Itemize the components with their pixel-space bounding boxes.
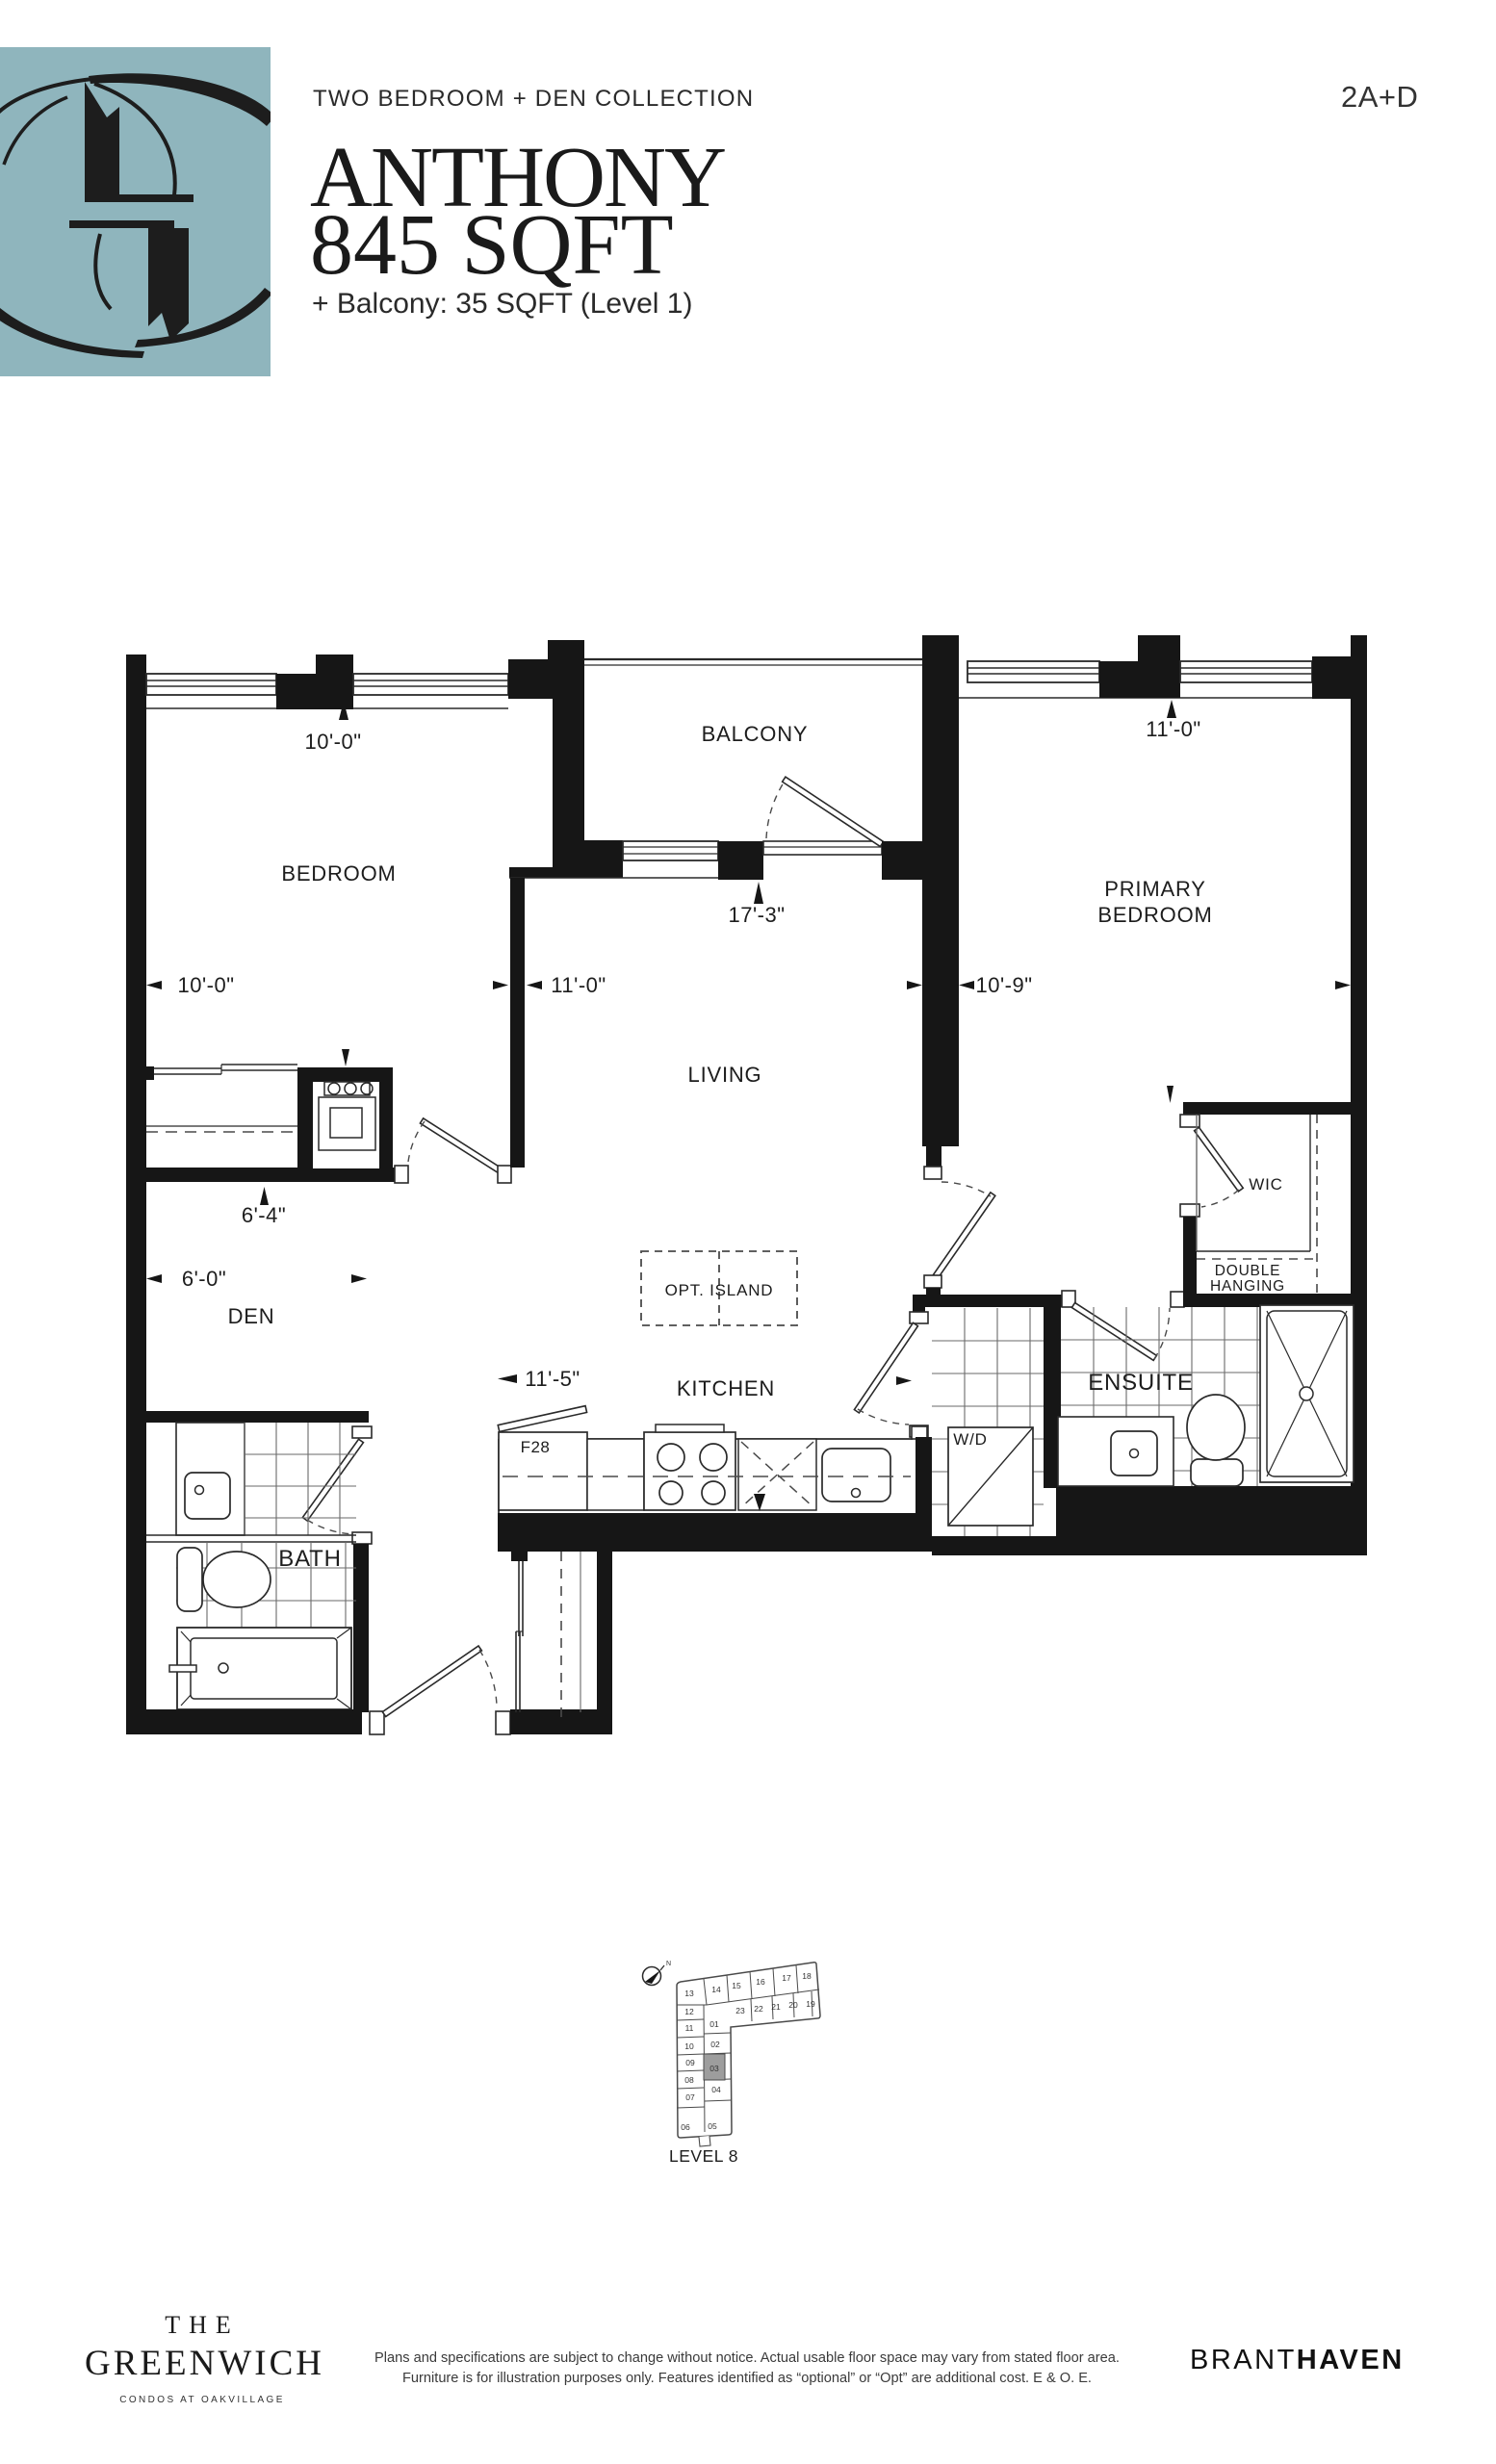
svg-text:BEDROOM: BEDROOM [281,861,396,885]
svg-text:14: 14 [711,1985,721,1994]
svg-text:21: 21 [771,2002,781,2012]
svg-text:6'-0": 6'-0" [182,1267,226,1291]
svg-text:6'-4": 6'-4" [242,1203,286,1227]
svg-text:11: 11 [685,2023,694,2033]
svg-text:KITCHEN: KITCHEN [677,1376,775,1400]
svg-text:07: 07 [685,2092,695,2102]
svg-text:10'-0": 10'-0" [177,973,234,997]
svg-text:ENSUITE: ENSUITE [1088,1370,1194,1396]
svg-text:08: 08 [684,2075,694,2085]
svg-text:PRIMARY: PRIMARY [1104,877,1205,901]
svg-text:LIVING: LIVING [688,1063,762,1087]
svg-text:11'-5": 11'-5" [525,1367,580,1391]
svg-text:18: 18 [802,1971,812,1981]
svg-text:01: 01 [709,2019,719,2029]
svg-text:02: 02 [710,2040,720,2049]
svg-text:04: 04 [711,2085,721,2094]
svg-text:20: 20 [788,2000,798,2010]
svg-text:10'-0": 10'-0" [304,730,361,754]
svg-text:17: 17 [782,1973,791,1983]
svg-text:10'-9": 10'-9" [975,973,1032,997]
svg-text:13: 13 [684,1989,694,1998]
svg-text:06: 06 [681,2122,690,2132]
svg-text:OPT. ISLAND: OPT. ISLAND [665,1281,774,1299]
svg-text:12: 12 [684,2007,694,2016]
svg-text:05: 05 [708,2121,717,2131]
svg-text:17'-3": 17'-3" [728,903,785,927]
svg-text:22: 22 [754,2004,763,2014]
svg-text:09: 09 [685,2058,695,2067]
svg-text:W/D: W/D [953,1430,987,1449]
svg-text:DEN: DEN [228,1304,275,1328]
svg-text:HANGING: HANGING [1210,1278,1285,1295]
svg-text:BEDROOM: BEDROOM [1097,903,1212,927]
svg-text:LEVEL 8: LEVEL 8 [669,2146,738,2166]
svg-text:WIC: WIC [1249,1175,1282,1193]
svg-text:10: 10 [684,2041,694,2051]
svg-text:16: 16 [756,1977,765,1987]
svg-text:03: 03 [709,2064,719,2073]
svg-text:DOUBLE: DOUBLE [1215,1263,1281,1279]
svg-text:11'-0": 11'-0" [551,973,606,997]
svg-text:11'-0": 11'-0" [1146,717,1200,741]
svg-text:BATH: BATH [278,1546,341,1572]
svg-text:23: 23 [735,2006,745,2015]
svg-text:19: 19 [806,1999,815,2009]
svg-text:BALCONY: BALCONY [702,722,809,746]
svg-text:N: N [666,1961,671,1967]
svg-text:15: 15 [732,1981,741,1990]
svg-text:F28: F28 [521,1438,551,1456]
